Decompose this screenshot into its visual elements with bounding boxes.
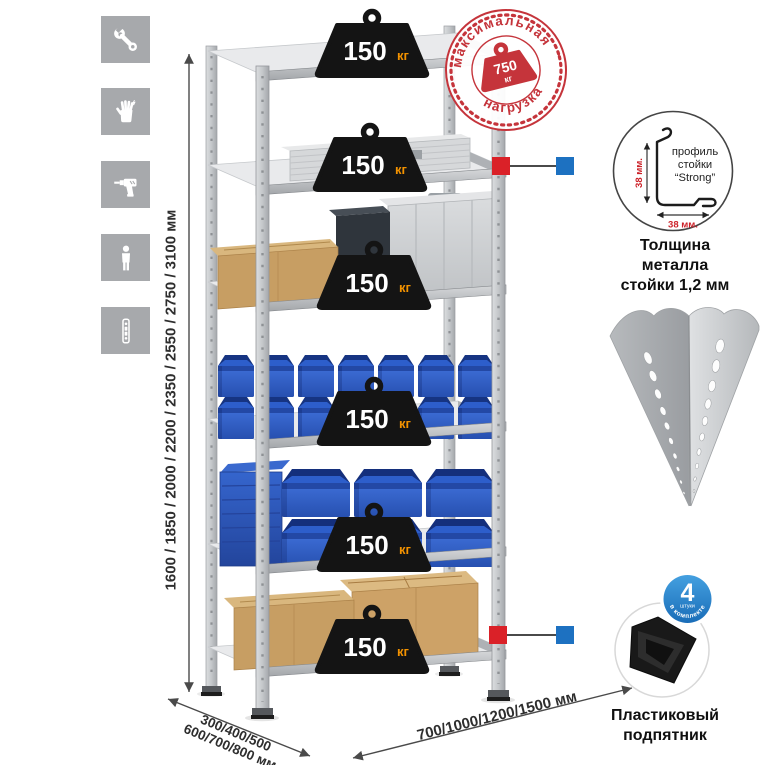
- svg-text:150: 150: [343, 632, 386, 662]
- rack-post-front-right: [492, 48, 505, 692]
- svg-text:стойки: стойки: [678, 159, 712, 171]
- callout-marker-foot-blue: [556, 626, 574, 644]
- callout-marker-post-red: [492, 157, 510, 175]
- perforated-post-icon: [101, 307, 150, 354]
- shelving-infographic: 1600 / 1850 / 2000 / 2200 / 2350 / 2550 …: [0, 0, 765, 765]
- max-load-stamp: максимальная нагрузка 750 кг: [442, 6, 570, 134]
- svg-text:150: 150: [345, 404, 388, 434]
- svg-text:“Strong”: “Strong”: [675, 172, 716, 184]
- svg-text:150: 150: [341, 150, 384, 180]
- wrench-icon: [101, 16, 150, 63]
- svg-text:150: 150: [345, 268, 388, 298]
- post-profile-detail: 38 мм. 38 мм. профиль стойки “Strong”: [610, 108, 736, 234]
- svg-text:кг: кг: [399, 542, 412, 557]
- height-dimension-label: 1600 / 1850 / 2000 / 2200 / 2350 / 2550 …: [163, 210, 180, 591]
- work-gloves-icon: [101, 88, 150, 135]
- svg-text:кг: кг: [397, 48, 410, 63]
- power-drill-icon: [101, 161, 150, 208]
- svg-text:кг: кг: [399, 280, 412, 295]
- angle-post-image: [596, 296, 764, 522]
- svg-text:кг: кг: [397, 644, 410, 659]
- rack-post-back-left: [206, 46, 217, 688]
- profile-caption: Толщина металла стойки 1,2 мм: [610, 236, 740, 296]
- svg-text:150: 150: [343, 36, 386, 66]
- svg-text:38 мм.: 38 мм.: [634, 158, 645, 188]
- callout-marker-profile-blue: [556, 157, 574, 175]
- shelf-2-load-weight: 150 кг: [315, 126, 425, 191]
- svg-text:кг: кг: [395, 162, 408, 177]
- svg-text:38 мм.: 38 мм.: [668, 220, 698, 231]
- svg-text:кг: кг: [399, 416, 412, 431]
- svg-text:150: 150: [345, 530, 388, 560]
- shelf-1-load-weight: 150 кг: [317, 12, 427, 77]
- svg-text:штуки: штуки: [680, 604, 695, 610]
- callout-line-bottom: [507, 634, 556, 636]
- svg-text:профиль: профиль: [672, 146, 718, 158]
- quantity-badge: 4 штуки в комплекте: [660, 572, 715, 627]
- callout-line-top: [510, 165, 556, 167]
- rack-post-front-left: [256, 66, 269, 710]
- assembler-person-icon: [101, 234, 150, 281]
- callout-marker-foot-red: [489, 626, 507, 644]
